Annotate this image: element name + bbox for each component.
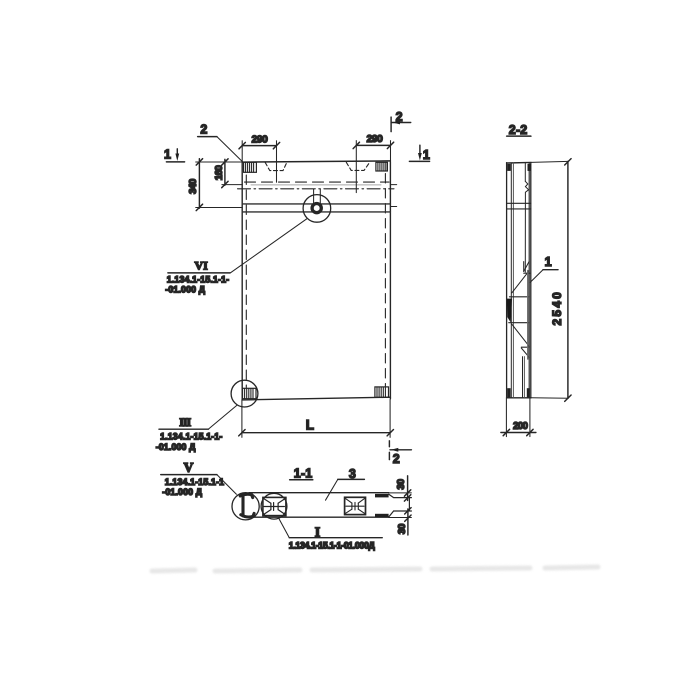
svg-text:V: V bbox=[184, 460, 194, 475]
svg-text:2: 2 bbox=[393, 452, 400, 466]
svg-text:1: 1 bbox=[545, 255, 552, 269]
svg-text:30: 30 bbox=[397, 523, 408, 534]
svg-text:-01.000 Д: -01.000 Д bbox=[156, 442, 196, 452]
svg-text:2: 2 bbox=[396, 110, 403, 124]
svg-text:-01.000 Д: -01.000 Д bbox=[162, 487, 202, 497]
svg-text:L: L bbox=[306, 418, 314, 433]
svg-text:2: 2 bbox=[200, 123, 207, 137]
svg-text:2-2: 2-2 bbox=[509, 123, 528, 137]
svg-text:160: 160 bbox=[214, 165, 225, 181]
svg-text:1: 1 bbox=[423, 148, 430, 162]
svg-text:340: 340 bbox=[188, 178, 199, 194]
svg-text:VI: VI bbox=[195, 259, 209, 273]
svg-text:290: 290 bbox=[367, 133, 383, 145]
svg-text:1.134.1-15.1-1-01.000Д: 1.134.1-15.1-1-01.000Д bbox=[289, 541, 376, 551]
svg-text:290: 290 bbox=[252, 133, 268, 145]
svg-text:1.134.1-15.1-1-: 1.134.1-15.1-1- bbox=[160, 432, 222, 442]
svg-text:2540: 2540 bbox=[550, 290, 564, 326]
svg-text:30: 30 bbox=[396, 478, 407, 489]
svg-text:1: 1 bbox=[164, 147, 171, 161]
svg-text:1.134.1-15.1-1: 1.134.1-15.1-1 bbox=[165, 477, 224, 487]
svg-text:1-1: 1-1 bbox=[294, 466, 313, 480]
svg-text:-01.000 Д: -01.000 Д bbox=[165, 285, 205, 295]
svg-text:200: 200 bbox=[513, 421, 528, 432]
svg-text:III: III bbox=[179, 415, 191, 429]
svg-text:1.134.1-15.1-1-: 1.134.1-15.1-1- bbox=[167, 274, 229, 284]
